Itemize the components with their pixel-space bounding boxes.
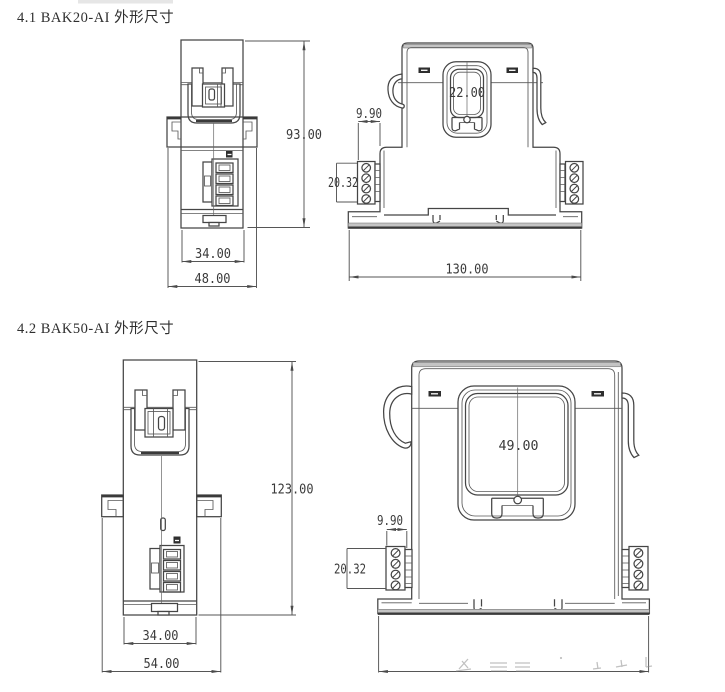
- bak20-side-view: 34.00 48.00 93.00: [167, 40, 322, 288]
- datasheet-dimension-page: 4.1 BAK20-AI 外形尺寸 4.2 BAK50-AI 外形尺寸: [0, 0, 725, 692]
- bak20-front-side-clip: [533, 68, 546, 124]
- dim-bak50-terminal-height: 20.32: [334, 562, 366, 578]
- bak20-front-terminal-left: [358, 162, 381, 205]
- bak50-front-wire-hook: [384, 386, 412, 448]
- dim-bak50-height: 123.00: [271, 482, 314, 498]
- dim-bak50-aperture: 49.00: [499, 438, 539, 454]
- dim-bak50-body-width: 34.00: [143, 628, 179, 644]
- bak50-side-terminal-block: [150, 546, 184, 593]
- bak50-front-terminal-right: [622, 547, 648, 591]
- bak50-front-aperture: 49.00: [458, 386, 575, 520]
- dim-bak20-height: 93.00: [286, 127, 322, 143]
- technical-drawing-canvas: 34.00 48.00 93.00: [0, 0, 725, 692]
- bak50-front-terminal-left: [386, 547, 412, 591]
- dim-bak20-terminal-height: 20.32: [328, 175, 358, 191]
- bak50-front-side-clip: [622, 393, 639, 458]
- dim-bak20-aperture: 22.00: [449, 85, 485, 101]
- dim-bak50-overall-width: 54.00: [144, 656, 180, 672]
- bak20-front-terminal-right: [560, 162, 583, 205]
- faded-watermark-smudge: [456, 657, 652, 671]
- bak20-side-terminal-block: [203, 159, 238, 206]
- bak20-front-view: 22.00 9: [328, 43, 583, 281]
- dim-bak50-terminal-depth: 9.90: [377, 513, 403, 529]
- dim-bak20-terminal-depth: 9.90: [356, 106, 382, 122]
- dim-bak20-body-width: 34.00: [195, 246, 231, 262]
- bak50-front-view: 49.00 9: [334, 361, 652, 673]
- dim-bak20-base-width: 130.00: [446, 262, 489, 278]
- scan-artifact: [78, 0, 173, 4]
- bak50-side-view: 123.00 34.00 54.00: [102, 360, 314, 673]
- dim-bak20-overall-width: 48.00: [195, 271, 231, 287]
- bak20-front-aperture: 22.00: [443, 62, 491, 138]
